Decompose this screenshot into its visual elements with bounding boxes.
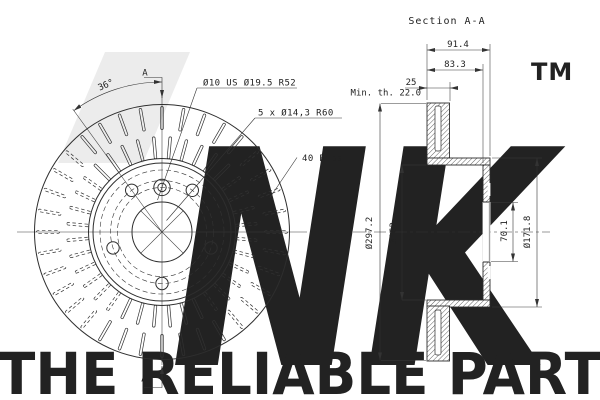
- friction-ring-bottom: [427, 306, 450, 361]
- friction-ring-top: [427, 103, 450, 158]
- hat-diameter-dim: Ø171.8: [522, 216, 533, 249]
- vent-slot: [44, 188, 67, 198]
- pilot-step-bottom: [488, 266, 491, 279]
- ribs-label: 40 Ribs.: [302, 154, 349, 164]
- tagline-watermark: THE RELIABLE PART: [0, 340, 600, 400]
- vent-slot: [83, 176, 103, 191]
- vent-channel: [435, 106, 441, 151]
- vent-slot: [53, 168, 74, 182]
- vent-slot: [98, 320, 112, 341]
- vent-slot: [75, 262, 96, 274]
- trademark-symbol: TM: [531, 58, 573, 86]
- vent-slot: [44, 266, 67, 276]
- hat-depth-dim: 83.3: [444, 60, 466, 70]
- vent-slot: [152, 137, 157, 159]
- brake-disc-technical-drawing: NK TM THE RELIABLE PART: [0, 0, 600, 400]
- vent-slot: [152, 305, 157, 327]
- vent-slot: [65, 297, 84, 314]
- ring-width-dim: 25: [406, 78, 417, 88]
- vent-slot: [94, 164, 111, 181]
- vent-slot: [38, 249, 61, 256]
- vent-slot: [69, 250, 91, 258]
- vent-slot: [67, 222, 89, 227]
- section-title: Section A-A: [408, 16, 485, 27]
- vent-slot: [94, 283, 111, 300]
- hat-wall-top: [427, 158, 490, 165]
- min-thickness-note: Min. th. 22.0: [351, 89, 421, 99]
- vent-slot: [83, 273, 103, 288]
- vent-slot: [120, 298, 132, 319]
- center-bore-dim: 70.1: [500, 220, 510, 242]
- vent-slot: [106, 291, 121, 311]
- vent-slot: [136, 303, 144, 325]
- outer-diameter-dim: Ø297.2: [364, 217, 375, 250]
- vent-slot: [75, 190, 96, 202]
- vent-inner-diameter-dim: Ø162: [388, 222, 399, 244]
- vent-slot: [67, 237, 89, 242]
- mounting-flange-wall: [483, 165, 491, 300]
- section-marker-letter: A: [142, 69, 148, 79]
- set-screw-label: Ø10 US Ø19.5 R52: [203, 78, 296, 89]
- bolt-pattern-label: 5 x Ø14,3 R60: [258, 108, 334, 119]
- watermark-layer: NK TM THE RELIABLE PART: [0, 52, 600, 400]
- vent-channel: [435, 310, 441, 355]
- vent-slot: [69, 206, 91, 214]
- overall-width-dim: 91.4: [447, 40, 469, 50]
- vent-slot: [80, 310, 97, 329]
- vent-slot: [53, 282, 74, 296]
- pilot-step-top: [488, 183, 491, 196]
- section-marker-letter: A: [141, 375, 147, 385]
- drawing-canvas: NK TM THE RELIABLE PART: [0, 0, 600, 400]
- vent-slot: [38, 209, 61, 216]
